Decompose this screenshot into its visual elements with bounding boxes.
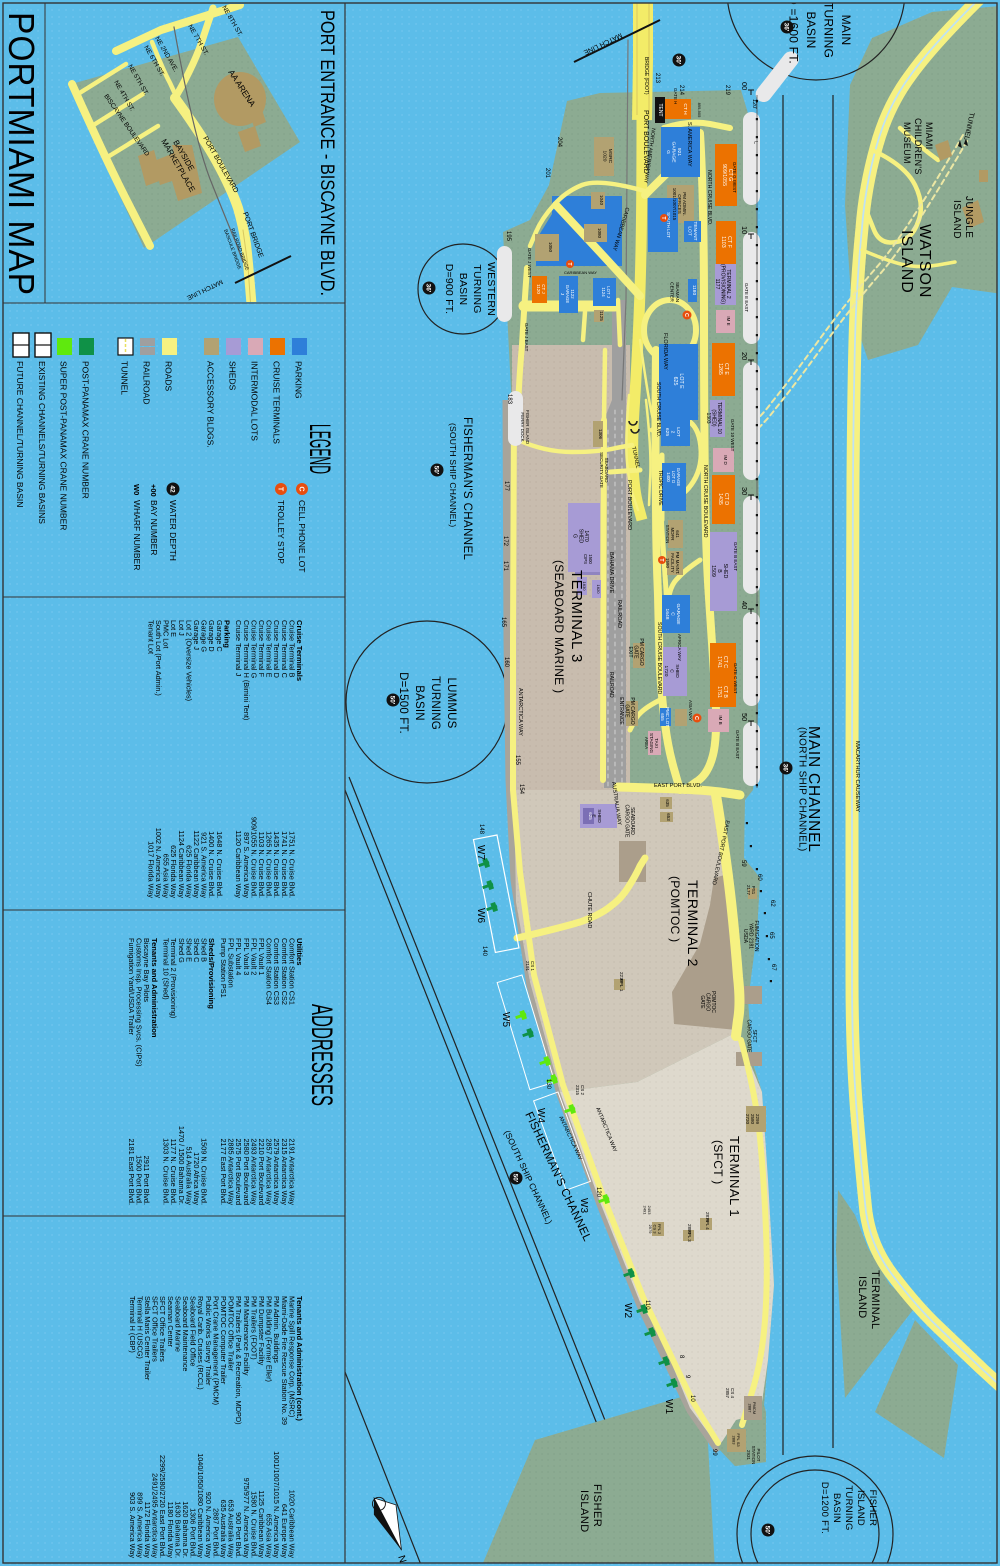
svg-text:ISLAND: ISLAND <box>856 1276 868 1319</box>
svg-text:MIAMI: MIAMI <box>924 122 934 150</box>
svg-text:RAILROAD: RAILROAD <box>616 600 622 628</box>
svg-text:AREA: AREA <box>644 737 649 749</box>
svg-text:120': 120' <box>751 99 757 109</box>
svg-text:CARGO GATE: CARGO GATE <box>623 805 629 839</box>
svg-text:SHEDS: SHEDS <box>228 361 238 391</box>
svg-text:2880: 2880 <box>687 1224 692 1235</box>
svg-text:10: 10 <box>740 226 749 234</box>
svg-text:Fumigation Yard/USDA Trailer: Fumigation Yard/USDA Trailer <box>127 938 136 1036</box>
svg-text:2491: 2491 <box>642 1206 647 1216</box>
svg-text:BASIN: BASIN <box>457 273 469 306</box>
svg-text:899-905: 899-905 <box>697 103 702 118</box>
svg-text:IM B: IM B <box>718 715 723 724</box>
svg-text:ADDRESSES: ADDRESSES <box>305 1004 338 1106</box>
svg-text:183: 183 <box>506 394 512 405</box>
svg-text:1120 Caribbean Way: 1120 Caribbean Way <box>234 830 243 898</box>
svg-text:1620: 1620 <box>596 585 601 595</box>
svg-text:1180: 1180 <box>691 285 697 296</box>
svg-text:921: 921 <box>676 148 682 156</box>
svg-text:Cruise Terminal J: Cruise Terminal J <box>234 620 243 677</box>
svg-text:140: 140 <box>481 946 487 957</box>
svg-text:LOT: LOT <box>675 427 681 437</box>
svg-text:BRIDGE (FDOT): BRIDGE (FDOT) <box>643 57 649 95</box>
svg-text:2579: 2579 <box>648 1225 653 1235</box>
svg-text:G: G <box>572 534 578 538</box>
svg-text:1040: 1040 <box>599 195 604 206</box>
svg-text:GARAGE: GARAGE <box>675 604 681 626</box>
svg-text:GATE 10 WEST: GATE 10 WEST <box>730 419 735 452</box>
svg-text:SHED: SHED <box>596 809 602 823</box>
svg-text:(POMTOC ): (POMTOC ) <box>668 876 682 942</box>
svg-text:1001/1007/1015: 1001/1007/1015 <box>672 188 677 221</box>
svg-text:TERMINAL 1: TERMINAL 1 <box>727 1136 742 1217</box>
svg-text:50': 50' <box>512 1174 519 1183</box>
svg-text:2177 East Port Blvd.: 2177 East Port Blvd. <box>219 1138 228 1205</box>
svg-text:2315: 2315 <box>575 1085 580 1096</box>
svg-text:MSRC: MSRC <box>607 149 613 164</box>
svg-text:TROLLEY STOP: TROLLEY STOP <box>276 500 286 564</box>
svg-text:50': 50' <box>433 466 440 475</box>
svg-text:625: 625 <box>672 377 678 386</box>
svg-text:SOUTH CRUISE BOULEVARD: SOUTH CRUISE BOULEVARD <box>656 622 662 695</box>
svg-text:AFRICA WAY: AFRICA WAY <box>677 634 682 661</box>
svg-text:PORT BOULEVARD: PORT BOULEVARD <box>626 480 632 530</box>
svg-text:FLORIDA WAY: FLORIDA WAY <box>662 333 668 370</box>
svg-text:201: 201 <box>544 168 550 179</box>
svg-text:LOT: LOT <box>687 226 693 235</box>
svg-text:154: 154 <box>518 784 524 795</box>
svg-text:CARGO GATE: CARGO GATE <box>745 1020 751 1054</box>
svg-text:2931: 2931 <box>746 1450 751 1461</box>
svg-text:MUSEUM: MUSEUM <box>902 122 912 164</box>
svg-text:1630: 1630 <box>582 582 587 592</box>
svg-text:BAY NUMBER: BAY NUMBER <box>149 500 159 555</box>
svg-text:J: J <box>560 293 565 295</box>
svg-text:C: C <box>298 486 305 491</box>
svg-text:20: 20 <box>740 352 749 360</box>
svg-text:ANTARCTICA WAY: ANTARCTICA WAY <box>517 688 523 736</box>
svg-text:1050: 1050 <box>548 242 553 253</box>
svg-text:1741: 1741 <box>716 656 722 668</box>
svg-text:1125: 1125 <box>599 311 604 321</box>
svg-text:PORT ENTRANCE - BISCAYNE BLVD.: PORT ENTRANCE - BISCAYNE BLVD. <box>316 10 337 296</box>
svg-text:ISLAND: ISLAND <box>578 1490 590 1533</box>
svg-text:IM E: IM E <box>726 316 731 325</box>
svg-text:└: └ <box>751 140 758 144</box>
svg-text:2210: 2210 <box>619 972 624 983</box>
svg-text:1306: 1306 <box>598 429 603 440</box>
svg-text:EXISTING CHANNELS/TURNING BASI: EXISTING CHANNELS/TURNING BASINS <box>37 361 47 524</box>
svg-text:T: T <box>566 262 572 265</box>
svg-text:99: 99 <box>711 1449 717 1456</box>
svg-text:FISHER: FISHER <box>867 1490 878 1527</box>
svg-text:+00: +00 <box>149 484 158 497</box>
svg-text:CRUISE TERMINALS: CRUISE TERMINALS <box>272 361 282 444</box>
svg-text:G: G <box>665 150 671 154</box>
svg-text:WESTERN: WESTERN <box>485 262 497 316</box>
svg-text:ROADS: ROADS <box>164 361 174 392</box>
svg-text:BAHAMA DRIVE: BAHAMA DRIVE <box>608 552 614 594</box>
svg-text:FISHERMAN'S CHANNEL: FISHERMAN'S CHANNEL <box>461 417 473 561</box>
svg-text:1509: 1509 <box>710 565 716 577</box>
svg-text:W1: W1 <box>663 1399 674 1414</box>
svg-text:CT H: CT H <box>682 103 688 115</box>
svg-text:ASIA WAY: ASIA WAY <box>688 700 693 721</box>
svg-text:50: 50 <box>740 713 749 721</box>
svg-text:C: C <box>693 716 699 720</box>
svg-text:30: 30 <box>740 487 749 495</box>
svg-text:GATE B EAST: GATE B EAST <box>733 542 738 571</box>
svg-text:TURNING: TURNING <box>843 1485 854 1530</box>
svg-text:155: 155 <box>514 755 520 766</box>
svg-text:(SEABOARD MARINE ): (SEABOARD MARINE ) <box>552 560 566 693</box>
svg-text:2857: 2857 <box>725 1388 730 1399</box>
svg-text:W0: W0 <box>132 484 141 495</box>
svg-text:653: 653 <box>666 813 671 821</box>
svg-text:42: 42 <box>169 485 176 493</box>
svg-text:10: 10 <box>689 1395 695 1402</box>
svg-text:1303 N. Cruise Blvd.: 1303 N. Cruise Blvd. <box>162 1138 171 1205</box>
svg-text:TENANT: TENANT <box>692 221 698 240</box>
svg-text:BASIN: BASIN <box>831 1493 842 1523</box>
svg-text:219: 219 <box>724 85 730 96</box>
svg-text:T: T <box>277 487 284 492</box>
svg-text:POST-PANAMAX CRANE NUMBER: POST-PANAMAX CRANE NUMBER <box>81 361 91 499</box>
svg-text:WATER DEPTH: WATER DEPTH <box>168 500 178 561</box>
svg-text:50': 50' <box>389 696 396 705</box>
svg-text:160: 160 <box>503 657 509 668</box>
svg-text:30': 30' <box>675 56 682 65</box>
svg-text:(SFCT ): (SFCT ) <box>711 1140 725 1185</box>
svg-text:TROPIC DRIVE: TROPIC DRIVE <box>657 470 663 506</box>
svg-text:625: 625 <box>664 428 670 436</box>
svg-text:LEGEND: LEGEND <box>303 424 336 474</box>
svg-text:GATE E EAST: GATE E EAST <box>744 283 749 312</box>
svg-text:BASIN: BASIN <box>413 685 425 721</box>
svg-text:2720: 2720 <box>745 1114 750 1125</box>
svg-text:ACCESSORY BLDGS.: ACCESSORY BLDGS. <box>206 361 216 448</box>
svg-text:CHUTE ROAD: CHUTE ROAD <box>586 892 592 928</box>
svg-text:1103: 1103 <box>720 236 726 247</box>
svg-text:2887: 2887 <box>747 1404 752 1414</box>
svg-text:(SOUTH SHIP CHANNEL): (SOUTH SHIP CHANNEL) <box>448 423 458 527</box>
svg-text:GATE B EAST: GATE B EAST <box>735 730 740 759</box>
svg-text:T: T <box>658 558 664 561</box>
svg-text:W2: W2 <box>622 1303 633 1318</box>
svg-text:ISLAND: ISLAND <box>855 1490 866 1526</box>
svg-text:IM D: IM D <box>723 455 728 465</box>
svg-text:WHARF NUMBER: WHARF NUMBER <box>132 500 142 570</box>
svg-text:CENTER: CENTER <box>669 282 675 302</box>
svg-text:1400: 1400 <box>666 472 671 482</box>
svg-text:GATE G WEST: GATE G WEST <box>732 162 737 193</box>
svg-text:213: 213 <box>654 73 660 84</box>
svg-text:JUNGLE: JUNGLE <box>963 196 974 238</box>
svg-text:RAILROAD: RAILROAD <box>608 672 614 698</box>
svg-text:FUTURE CHANNEL/TURNING BASIN: FUTURE CHANNEL/TURNING BASIN <box>15 361 25 507</box>
svg-text:TENT: TENT <box>657 103 663 116</box>
svg-text:TERMINAL: TERMINAL <box>869 1270 881 1330</box>
svg-text:2875: 2875 <box>705 1212 710 1223</box>
svg-text:60: 60 <box>756 874 762 881</box>
svg-text:ENTRANCE: ENTRANCE <box>618 697 624 725</box>
svg-text:TURNING: TURNING <box>822 2 836 58</box>
svg-text:S. AMERICA WAY: S. AMERICA WAY <box>686 122 692 167</box>
svg-text:165: 165 <box>500 617 506 628</box>
svg-text:1124: 1124 <box>601 287 606 297</box>
svg-text:120: 120 <box>595 1187 601 1198</box>
svg-text:40: 40 <box>740 601 749 609</box>
svg-text:Tenant Lot: Tenant Lot <box>146 620 155 654</box>
svg-text:1303: 1303 <box>705 412 711 423</box>
svg-text:GATE H: GATE H <box>673 88 678 104</box>
svg-text:MACARTHUR CAUSEWAY: MACARTHUR CAUSEWAY <box>854 741 860 812</box>
svg-text:SEAMAN: SEAMAN <box>674 282 680 303</box>
svg-text:SHED: SHED <box>674 664 680 678</box>
svg-text:MAIN: MAIN <box>839 15 853 46</box>
svg-text:62: 62 <box>769 900 775 907</box>
svg-text:909/1055: 909/1055 <box>721 164 727 186</box>
svg-text:130: 130 <box>545 1079 551 1090</box>
svg-text:Terminal 10 (Shed): Terminal 10 (Shed) <box>162 938 171 1000</box>
svg-text:GARAGE: GARAGE <box>671 142 677 164</box>
svg-text:Pump Station PS1: Pump Station PS1 <box>219 938 228 998</box>
svg-text:1751: 1751 <box>716 686 722 698</box>
svg-text:59: 59 <box>740 860 746 867</box>
svg-text:PORTMIAMI MAP: PORTMIAMI MAP <box>1 12 42 296</box>
svg-text:ISLAND: ISLAND <box>898 230 915 294</box>
svg-text:148: 148 <box>478 824 484 835</box>
svg-text:TURNING: TURNING <box>429 676 441 730</box>
svg-text:172: 172 <box>502 536 508 547</box>
svg-text:ISLAND: ISLAND <box>951 200 962 239</box>
svg-text:2191: 2191 <box>525 961 530 972</box>
svg-text:00: 00 <box>740 82 749 90</box>
svg-text:655: 655 <box>660 713 665 721</box>
svg-text:625: 625 <box>588 812 593 820</box>
svg-text:TURNING: TURNING <box>471 264 483 313</box>
svg-text:EXIT: EXIT <box>627 646 633 657</box>
svg-text:W7: W7 <box>475 845 486 860</box>
svg-text:C: C <box>670 612 676 616</box>
svg-text:D=1500 FT.: D=1500 FT. <box>397 672 409 734</box>
svg-text:GATE: GATE <box>699 995 705 1009</box>
svg-text:PARKING: PARKING <box>294 361 304 399</box>
svg-text:204: 204 <box>556 137 562 148</box>
svg-text:SECURITY GATE: SECURITY GATE <box>599 452 604 488</box>
svg-text:CHILDREN'S: CHILDREN'S <box>913 118 923 175</box>
svg-text:1435: 1435 <box>717 493 723 505</box>
svg-text:177: 177 <box>503 481 509 492</box>
svg-text:903 S. America Way: 903 S. America Way <box>128 1492 137 1558</box>
svg-text:1120: 1120 <box>536 284 541 294</box>
svg-text:2177: 2177 <box>746 885 751 896</box>
svg-text:SOUTH CRUISE BLVD.: SOUTH CRUISE BLVD. <box>655 382 661 437</box>
svg-text:STATION: STATION <box>665 525 670 544</box>
svg-text:65: 65 <box>768 932 774 939</box>
svg-text:635: 635 <box>665 799 670 807</box>
svg-text:36': 36' <box>782 764 789 773</box>
svg-text:D=900 FT.: D=900 FT. <box>443 264 455 315</box>
svg-text:1720: 1720 <box>663 666 669 677</box>
svg-text:2181 East Port Blvd.: 2181 East Port Blvd. <box>127 1138 136 1205</box>
svg-text:T: T <box>660 216 666 219</box>
svg-text:FISHER: FISHER <box>591 1484 603 1527</box>
svg-text:GATE J EAST: GATE J EAST <box>524 323 529 352</box>
svg-text:NORTH CRUISE BOULEVARD: NORTH CRUISE BOULEVARD <box>702 465 708 538</box>
svg-text:171: 171 <box>502 561 508 572</box>
svg-text:C: C <box>669 669 675 673</box>
svg-text:36': 36' <box>425 284 432 293</box>
svg-text:1020: 1020 <box>602 151 608 162</box>
svg-text:BASIN: BASIN <box>804 11 818 48</box>
svg-text:110: 110 <box>644 1300 650 1310</box>
svg-text:TERMINAL 2: TERMINAL 2 <box>685 880 701 967</box>
svg-text:1177: 1177 <box>714 279 720 290</box>
svg-text:36': 36' <box>783 23 790 32</box>
svg-text:USDA: USDA <box>742 929 748 944</box>
svg-text:TUNNEL: TUNNEL <box>120 361 130 395</box>
svg-text:W6: W6 <box>475 908 486 923</box>
svg-text:1080: 1080 <box>597 228 602 239</box>
svg-text:195: 195 <box>505 231 511 242</box>
svg-text:RAILROAD: RAILROAD <box>142 361 152 404</box>
svg-text:1648: 1648 <box>664 609 670 620</box>
svg-text:GATE J WEST: GATE J WEST <box>527 248 532 278</box>
svg-text:NORTH CRUISE BLVD.: NORTH CRUISE BLVD. <box>706 170 712 225</box>
svg-text:SUPER POST-PANAMAX CRANE NUMBE: SUPER POST-PANAMAX CRANE NUMBER <box>59 361 69 530</box>
svg-text:D=1200 FT.: D=1200 FT. <box>819 1482 830 1534</box>
svg-text:67: 67 <box>770 964 776 971</box>
svg-text:W5: W5 <box>500 1012 511 1027</box>
svg-text:2: 2 <box>670 431 676 434</box>
svg-text:FERRY DOCK: FERRY DOCK <box>520 412 525 441</box>
svg-text:GATE C WEST: GATE C WEST <box>733 663 738 694</box>
svg-text:C: C <box>683 313 689 317</box>
svg-text:CARIBBEAN WAY: CARIBBEAN WAY <box>564 270 597 275</box>
svg-text:LUMMUS: LUMMUS <box>445 677 457 728</box>
svg-text:50': 50' <box>764 1526 771 1535</box>
svg-text:2883: 2883 <box>731 1436 736 1446</box>
svg-text:CELL PHONE LOT: CELL PHONE LOT <box>297 500 307 572</box>
svg-text:CIPS: CIPS <box>583 554 588 564</box>
svg-text:1017 Florida Way: 1017 Florida Way <box>146 841 155 898</box>
svg-text:WATSON: WATSON <box>916 224 933 298</box>
svg-text:1265: 1265 <box>717 363 723 375</box>
svg-text:INTERMODAL LOTS: INTERMODAL LOTS <box>250 361 260 441</box>
svg-text:EAST PORT BLVD.: EAST PORT BLVD. <box>654 783 702 789</box>
svg-text:(NORTH SHIP CHANNEL): (NORTH SHIP CHANNEL) <box>797 727 808 852</box>
svg-text:Terminal H (CBP): Terminal H (CBP) <box>128 1296 137 1353</box>
